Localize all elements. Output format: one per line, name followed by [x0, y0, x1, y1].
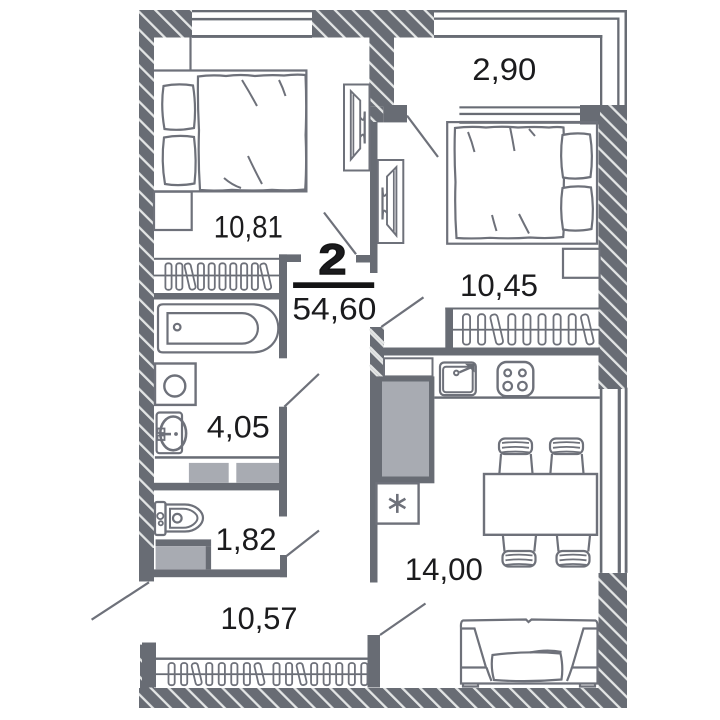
- svg-text:1,82: 1,82: [216, 521, 277, 557]
- svg-text:2,90: 2,90: [472, 51, 536, 87]
- svg-text:10,81: 10,81: [214, 209, 283, 245]
- svg-text:10,57: 10,57: [221, 600, 298, 636]
- svg-text:14,00: 14,00: [405, 551, 483, 587]
- svg-text:4,05: 4,05: [207, 409, 270, 445]
- svg-text:2: 2: [319, 237, 347, 284]
- svg-text:10,45: 10,45: [460, 267, 538, 303]
- svg-text:54,60: 54,60: [292, 291, 376, 327]
